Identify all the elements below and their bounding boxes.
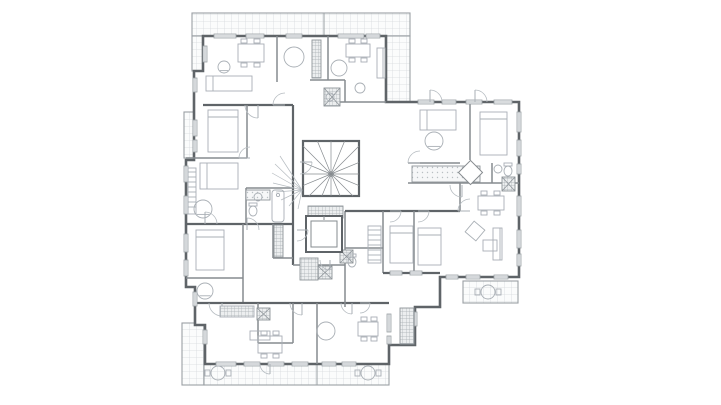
tiled-floor: [312, 40, 321, 78]
balcony-right-wing: [463, 281, 518, 303]
floor-plan-canvas: [0, 0, 721, 405]
floor-plan-viewport: [0, 0, 721, 405]
terrace-left-upper: [192, 36, 203, 71]
terrace-bottom-left: [182, 323, 204, 385]
kitchen-counter: [220, 306, 254, 317]
roof-terrace-top-right: [386, 36, 410, 102]
tiled-corridor: [246, 190, 270, 200]
roof-terrace-top: [192, 13, 410, 36]
terrace-left-mid: [184, 112, 194, 158]
tiled-floor: [400, 308, 414, 344]
tiled-floor: [300, 258, 318, 280]
tiled-floor: [274, 225, 283, 257]
